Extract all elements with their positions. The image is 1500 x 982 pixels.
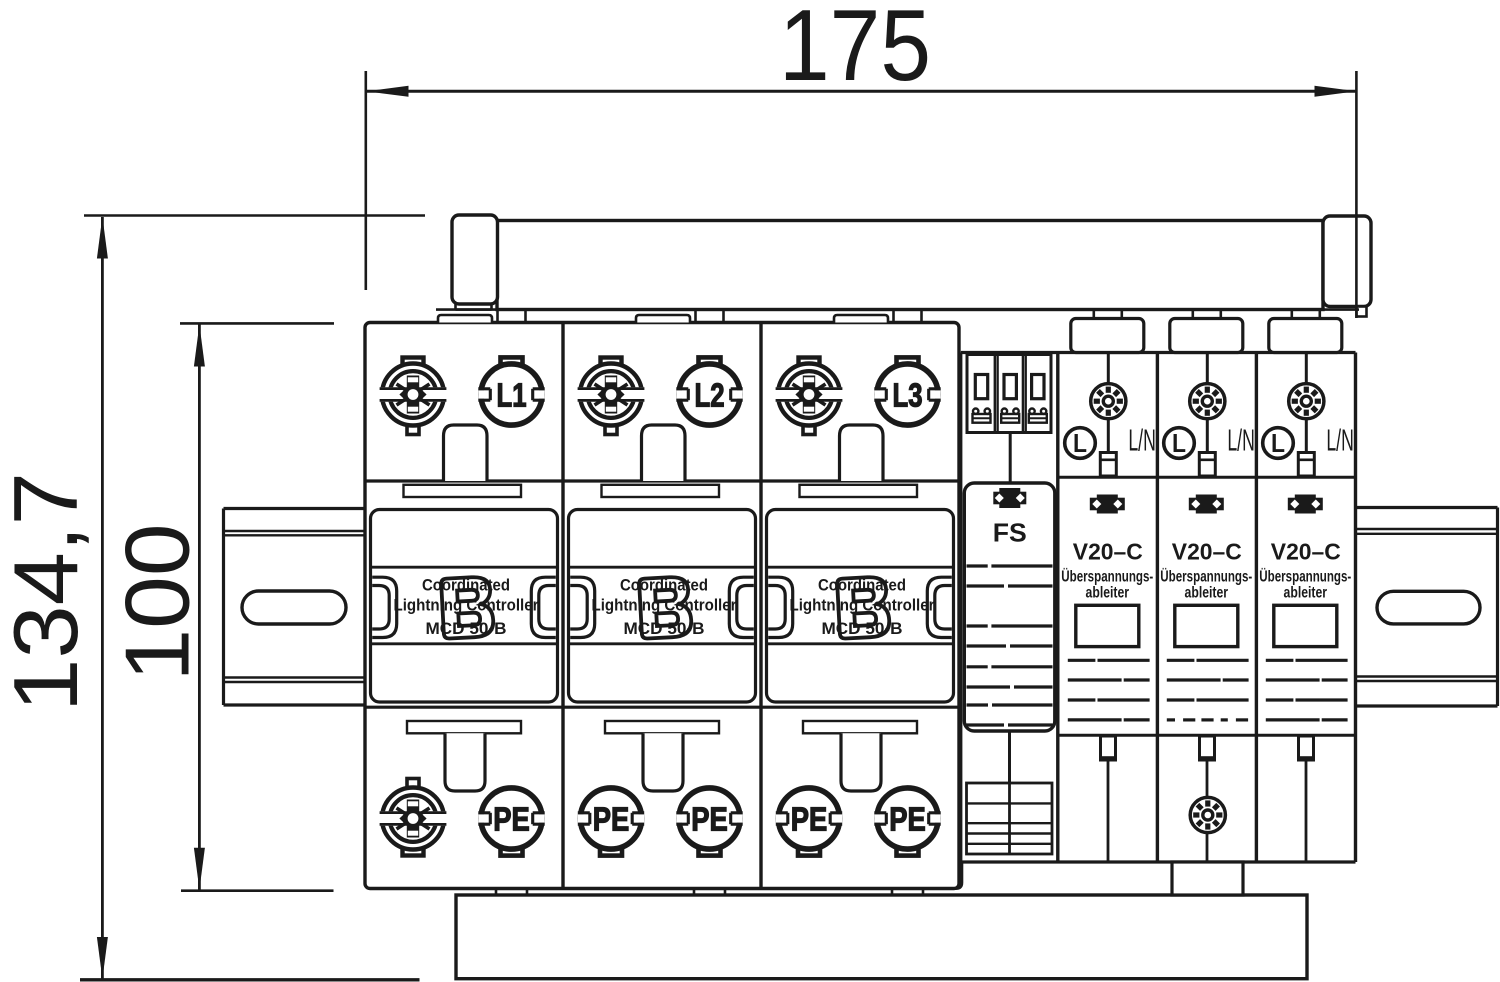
svg-text:MCD 50-B: MCD 50-B <box>624 620 705 638</box>
svg-text:L: L <box>1172 428 1186 458</box>
svg-text:PE: PE <box>593 801 630 838</box>
svg-text:Lightning Controller: Lightning Controller <box>790 597 936 615</box>
svg-text:134,7: 134,7 <box>0 472 97 712</box>
svg-text:L/N: L/N <box>1227 423 1255 458</box>
svg-text:ableiter: ableiter <box>1086 585 1130 602</box>
svg-text:L2: L2 <box>695 377 725 414</box>
svg-text:L: L <box>1073 428 1087 458</box>
svg-text:L/N: L/N <box>1128 423 1156 458</box>
svg-text:Überspannungs-: Überspannungs- <box>1160 569 1252 586</box>
svg-text:175: 175 <box>779 0 931 102</box>
svg-text:Überspannungs-: Überspannungs- <box>1259 569 1351 586</box>
svg-text:V20–C: V20–C <box>1172 539 1242 565</box>
svg-text:PE: PE <box>791 801 828 838</box>
svg-text:ableiter: ableiter <box>1284 585 1328 602</box>
svg-text:Coordinated: Coordinated <box>422 577 510 595</box>
svg-text:L3: L3 <box>893 377 923 414</box>
svg-text:V20–C: V20–C <box>1073 539 1143 565</box>
svg-text:L/N: L/N <box>1326 423 1354 458</box>
svg-text:MCD 50-B: MCD 50-B <box>822 620 903 638</box>
svg-text:L1: L1 <box>497 377 527 414</box>
svg-text:Lightning Controller: Lightning Controller <box>394 597 540 615</box>
svg-text:MCD 50-B: MCD 50-B <box>426 620 507 638</box>
svg-text:Coordinated: Coordinated <box>818 577 906 595</box>
svg-text:Überspannungs-: Überspannungs- <box>1061 569 1153 586</box>
svg-text:V20–C: V20–C <box>1271 539 1341 565</box>
svg-text:FS: FS <box>993 518 1027 548</box>
svg-text:ableiter: ableiter <box>1185 585 1229 602</box>
svg-text:PE: PE <box>691 801 728 838</box>
svg-text:PE: PE <box>493 801 530 838</box>
svg-text:PE: PE <box>889 801 926 838</box>
svg-text:L: L <box>1271 428 1285 458</box>
svg-text:Coordinated: Coordinated <box>620 577 708 595</box>
svg-text:Lightning Controller: Lightning Controller <box>592 597 738 615</box>
svg-text:100: 100 <box>108 524 209 682</box>
